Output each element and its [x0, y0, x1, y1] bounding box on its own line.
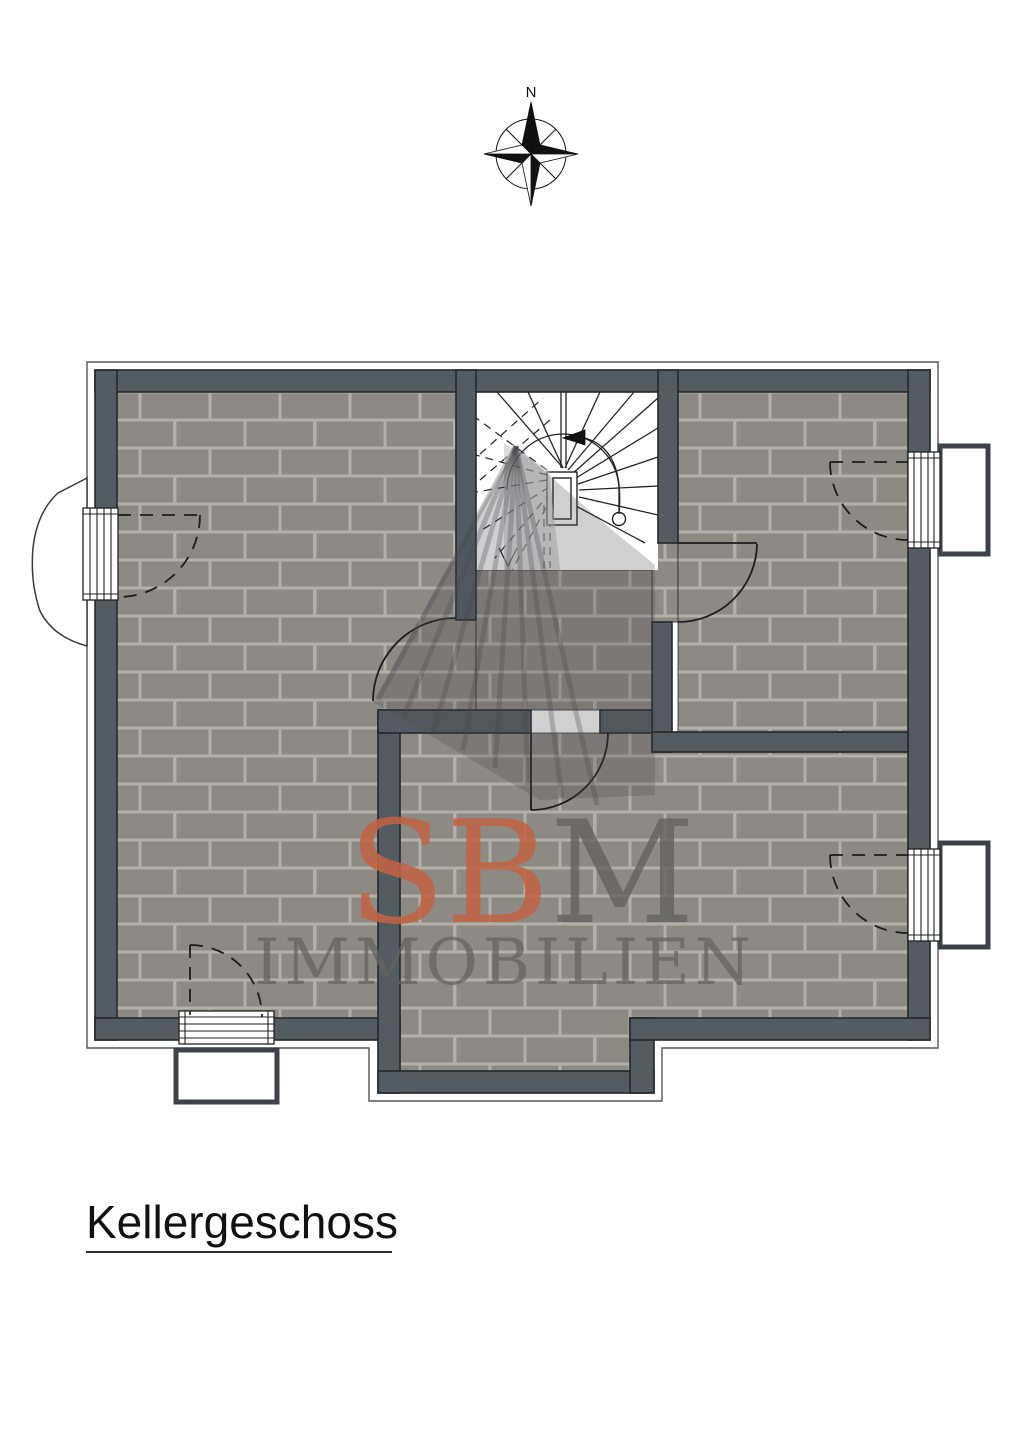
- light-well-left: [32, 478, 87, 646]
- wall-stair-right: [658, 370, 678, 543]
- room-top-right-floor: [678, 392, 908, 732]
- compass-rose-icon: N: [484, 84, 578, 206]
- window-bottom-left: [179, 1011, 274, 1044]
- window-top-right: [908, 452, 940, 548]
- light-well-top-right: [940, 446, 988, 554]
- wall-bottom-middle: [378, 1071, 654, 1093]
- wall-right-rooms-divider: [652, 732, 908, 752]
- north-label: N: [526, 84, 537, 101]
- handrail-end: [613, 513, 626, 526]
- light-well-bottom-left: [176, 1050, 277, 1102]
- wall-bottom-right: [630, 1018, 930, 1040]
- page-title-group: Kellergeschoss: [86, 1196, 398, 1252]
- wall-top: [95, 370, 930, 392]
- light-well-bottom-right: [940, 843, 988, 947]
- floor-plan-canvas: N: [0, 0, 1010, 1440]
- window-left: [83, 508, 118, 600]
- page-title: Kellergeschoss: [86, 1196, 398, 1248]
- window-bottom-right: [908, 849, 940, 941]
- wall-left: [95, 370, 117, 1040]
- watermark-subtitle: IMMOBILIEN: [254, 926, 756, 1000]
- floor-plan-page: N: [0, 0, 1010, 1440]
